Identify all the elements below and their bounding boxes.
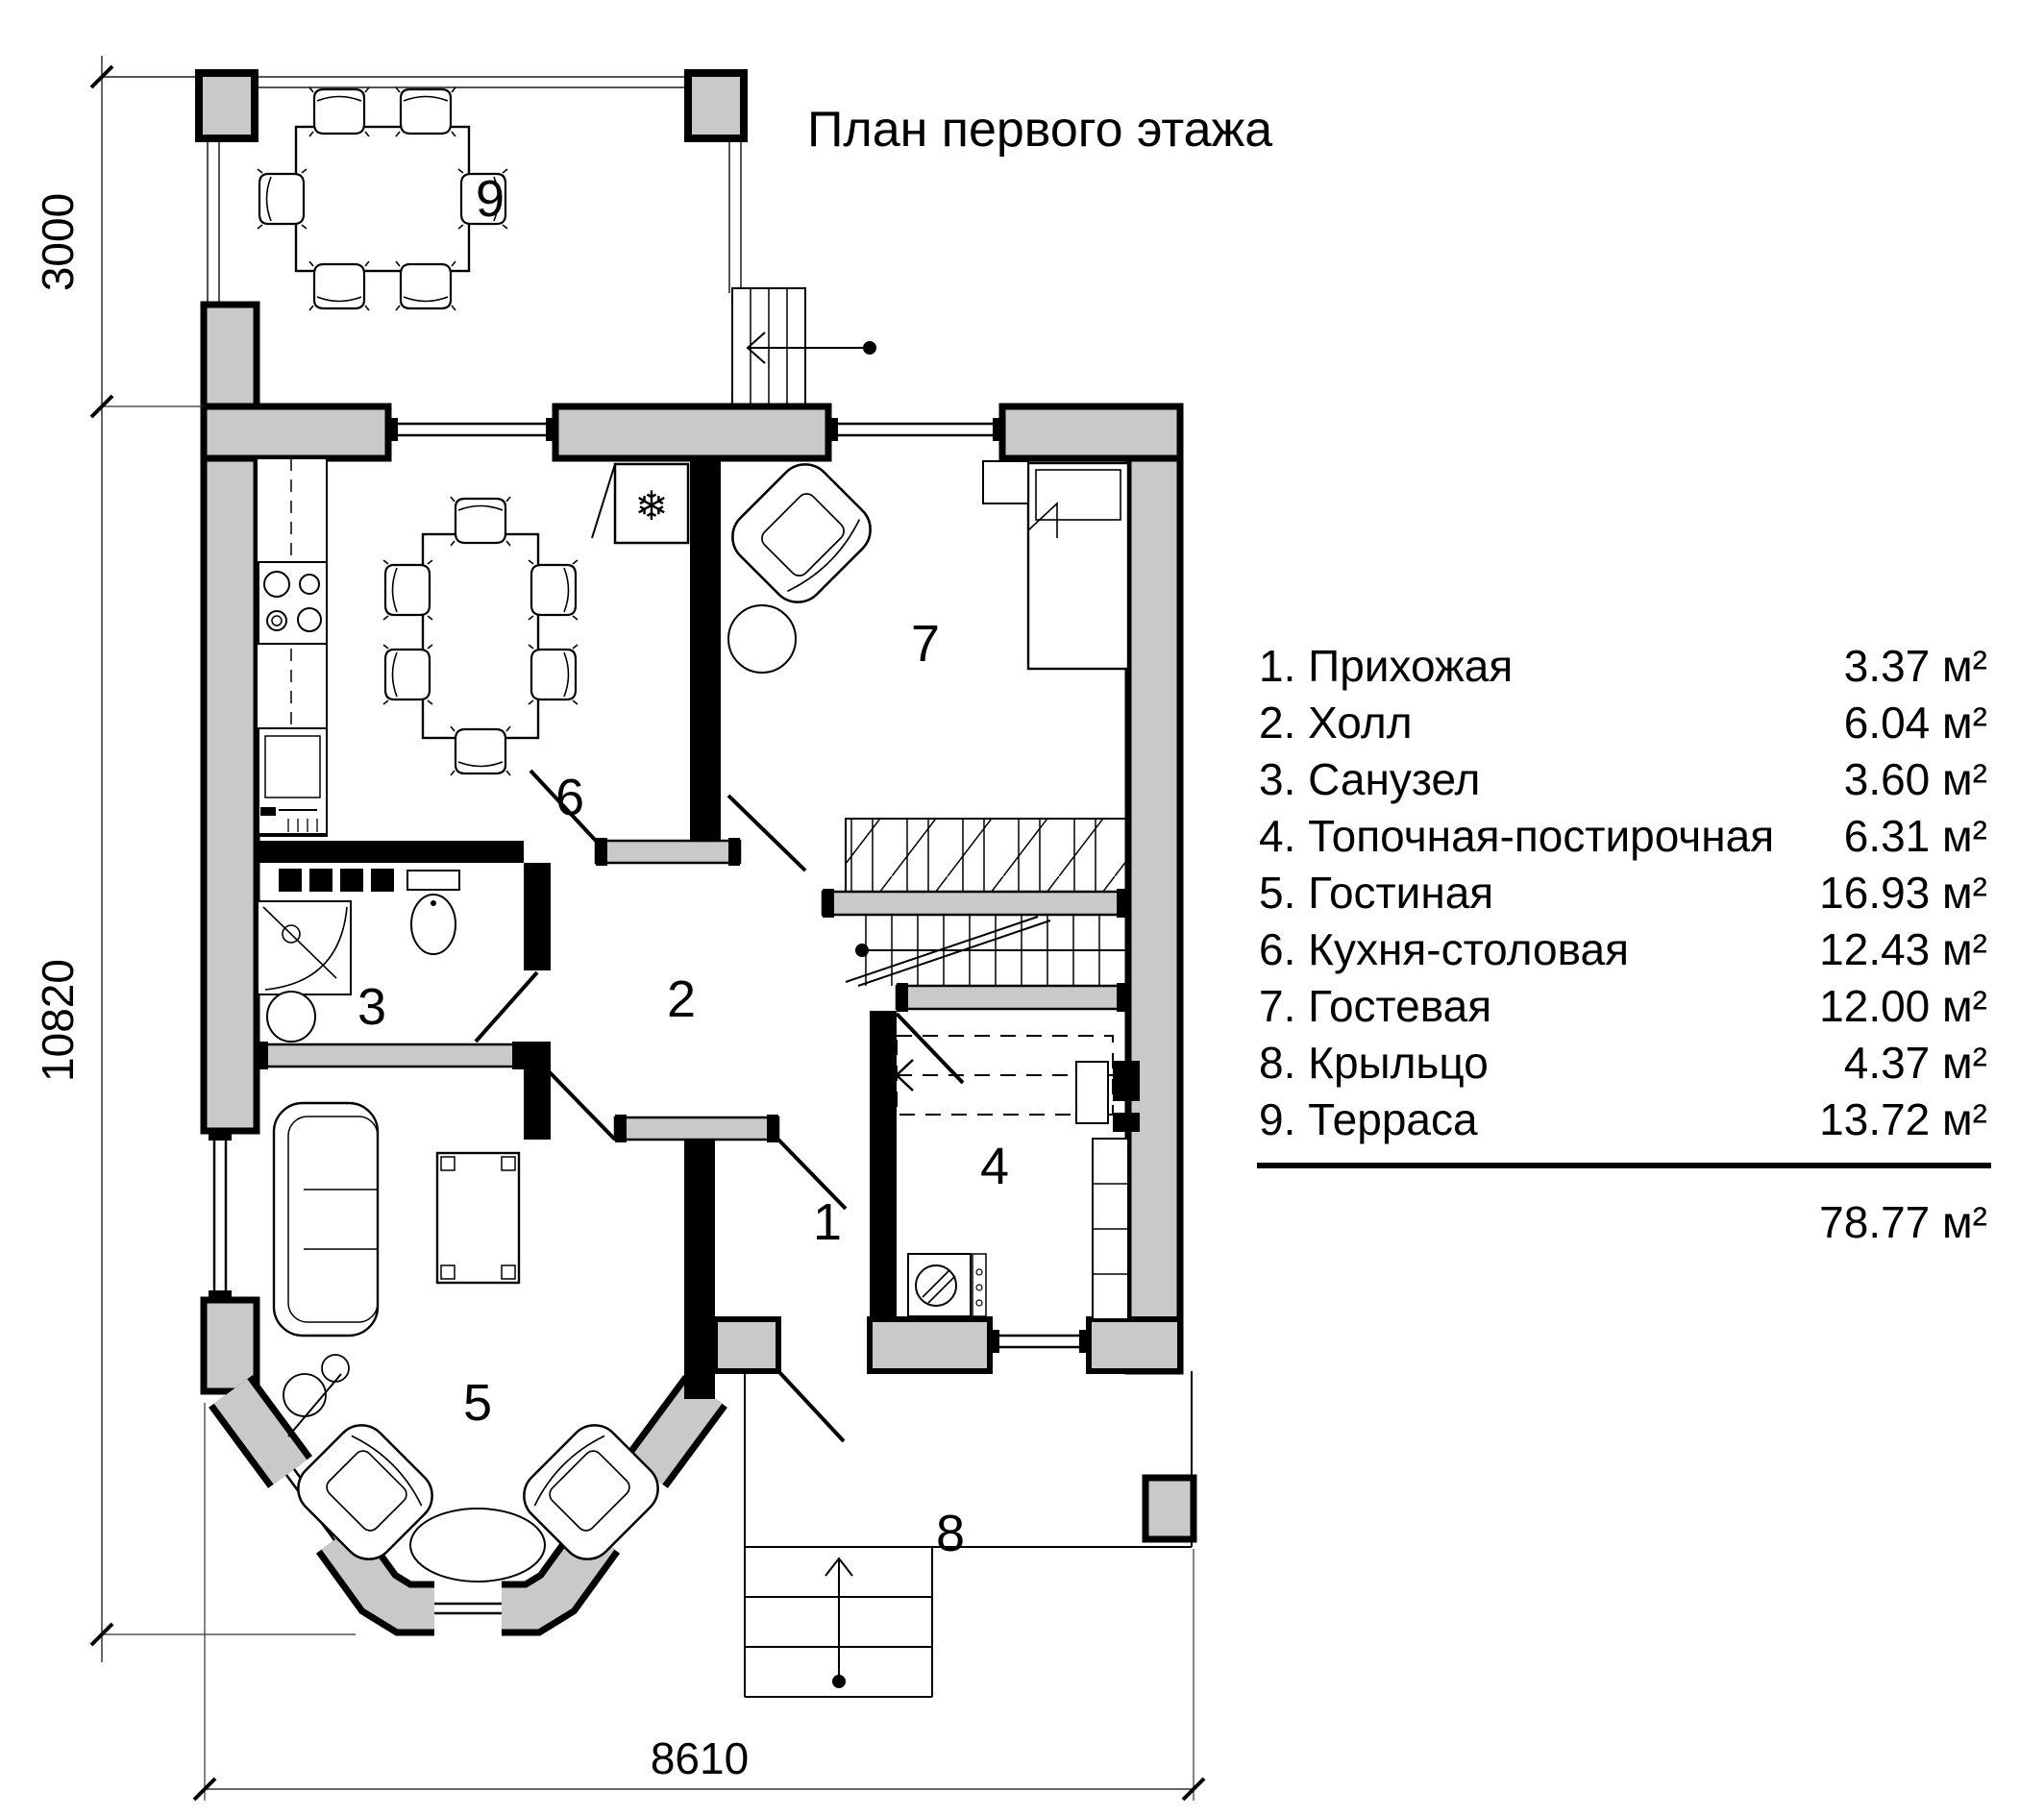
legend-item-label: 6. Кухня-столовая [1259,924,1629,974]
closet-hatched [846,819,1128,892]
legend-total: 78.77 м² [1819,1197,1987,1247]
legend-item-area: 13.72 м² [1819,1094,1987,1144]
room-label-1: 1 [813,1193,842,1251]
washbasin [267,992,315,1042]
legend-item-area: 12.00 м² [1819,981,1987,1031]
room-label-9: 9 [476,170,505,228]
room-label-7: 7 [911,615,940,673]
sofa [274,1103,378,1336]
side-table [728,605,796,673]
legend-item-area: 3.60 м² [1844,754,1987,804]
wall-stair-south [897,983,1128,1012]
room-label-2: 2 [667,970,696,1028]
legend-item-area: 4.37 м² [1844,1038,1987,1088]
legend-item-area: 16.93 м² [1819,868,1987,918]
legend-item-area: 3.37 м² [1844,641,1987,691]
floor-plan-page: 9 [0,0,2044,1816]
cooktop [259,562,327,644]
legend-item-label: 3. Санузел [1259,754,1480,804]
legend-item-label: 9. Терраса [1259,1094,1478,1144]
cabinet [1076,1062,1108,1123]
nightstand [983,461,1028,503]
dim-house-width: 8610 [651,1733,749,1783]
legend-item-label: 1. Прихожая [1259,641,1513,691]
wall-kitchen-hall [596,838,740,866]
legend-item-label: 7. Гостевая [1259,981,1491,1031]
legend-item-area: 6.31 м² [1844,811,1987,861]
porch-column [1145,1478,1194,1539]
bed [1028,463,1128,669]
legend-item-label: 2. Холл [1259,698,1413,748]
wall-stair-north [823,889,1128,918]
boiler-unit-small [1113,1113,1140,1132]
room-label-5: 5 [463,1374,492,1432]
room-label-6: 6 [555,769,584,826]
terrace-column-left [199,73,255,138]
legend-item-label: 8. Крыльцо [1259,1038,1489,1088]
coffee-table [437,1153,519,1283]
legend-item-label: 5. Гостиная [1259,868,1493,918]
shower [258,901,351,994]
room-label-8: 8 [936,1505,965,1562]
room-label-3: 3 [357,978,386,1036]
legend-item-area: 12.43 м² [1819,924,1987,974]
dim-house-depth: 10820 [33,959,83,1082]
terrace-column-right [688,73,744,138]
page-title: План первого этажа [807,102,1272,158]
legend-item-label: 4. Топочная-постирочная [1259,811,1774,861]
snowflake-icon: ❄ [634,483,668,528]
toilet [407,871,459,954]
wall-bath-south [257,1042,524,1069]
room-label-4: 4 [980,1138,1009,1195]
kitchen-cabinet [259,728,327,834]
boiler-unit [1113,1061,1140,1101]
dim-terrace-depth: 3000 [33,193,83,291]
floor-plan-canvas: 9 [0,0,2044,1816]
wall-hall-south [615,1115,778,1142]
washing-machine [908,1254,986,1316]
legend-item-area: 6.04 м² [1844,698,1987,748]
oval-table [410,1509,545,1582]
